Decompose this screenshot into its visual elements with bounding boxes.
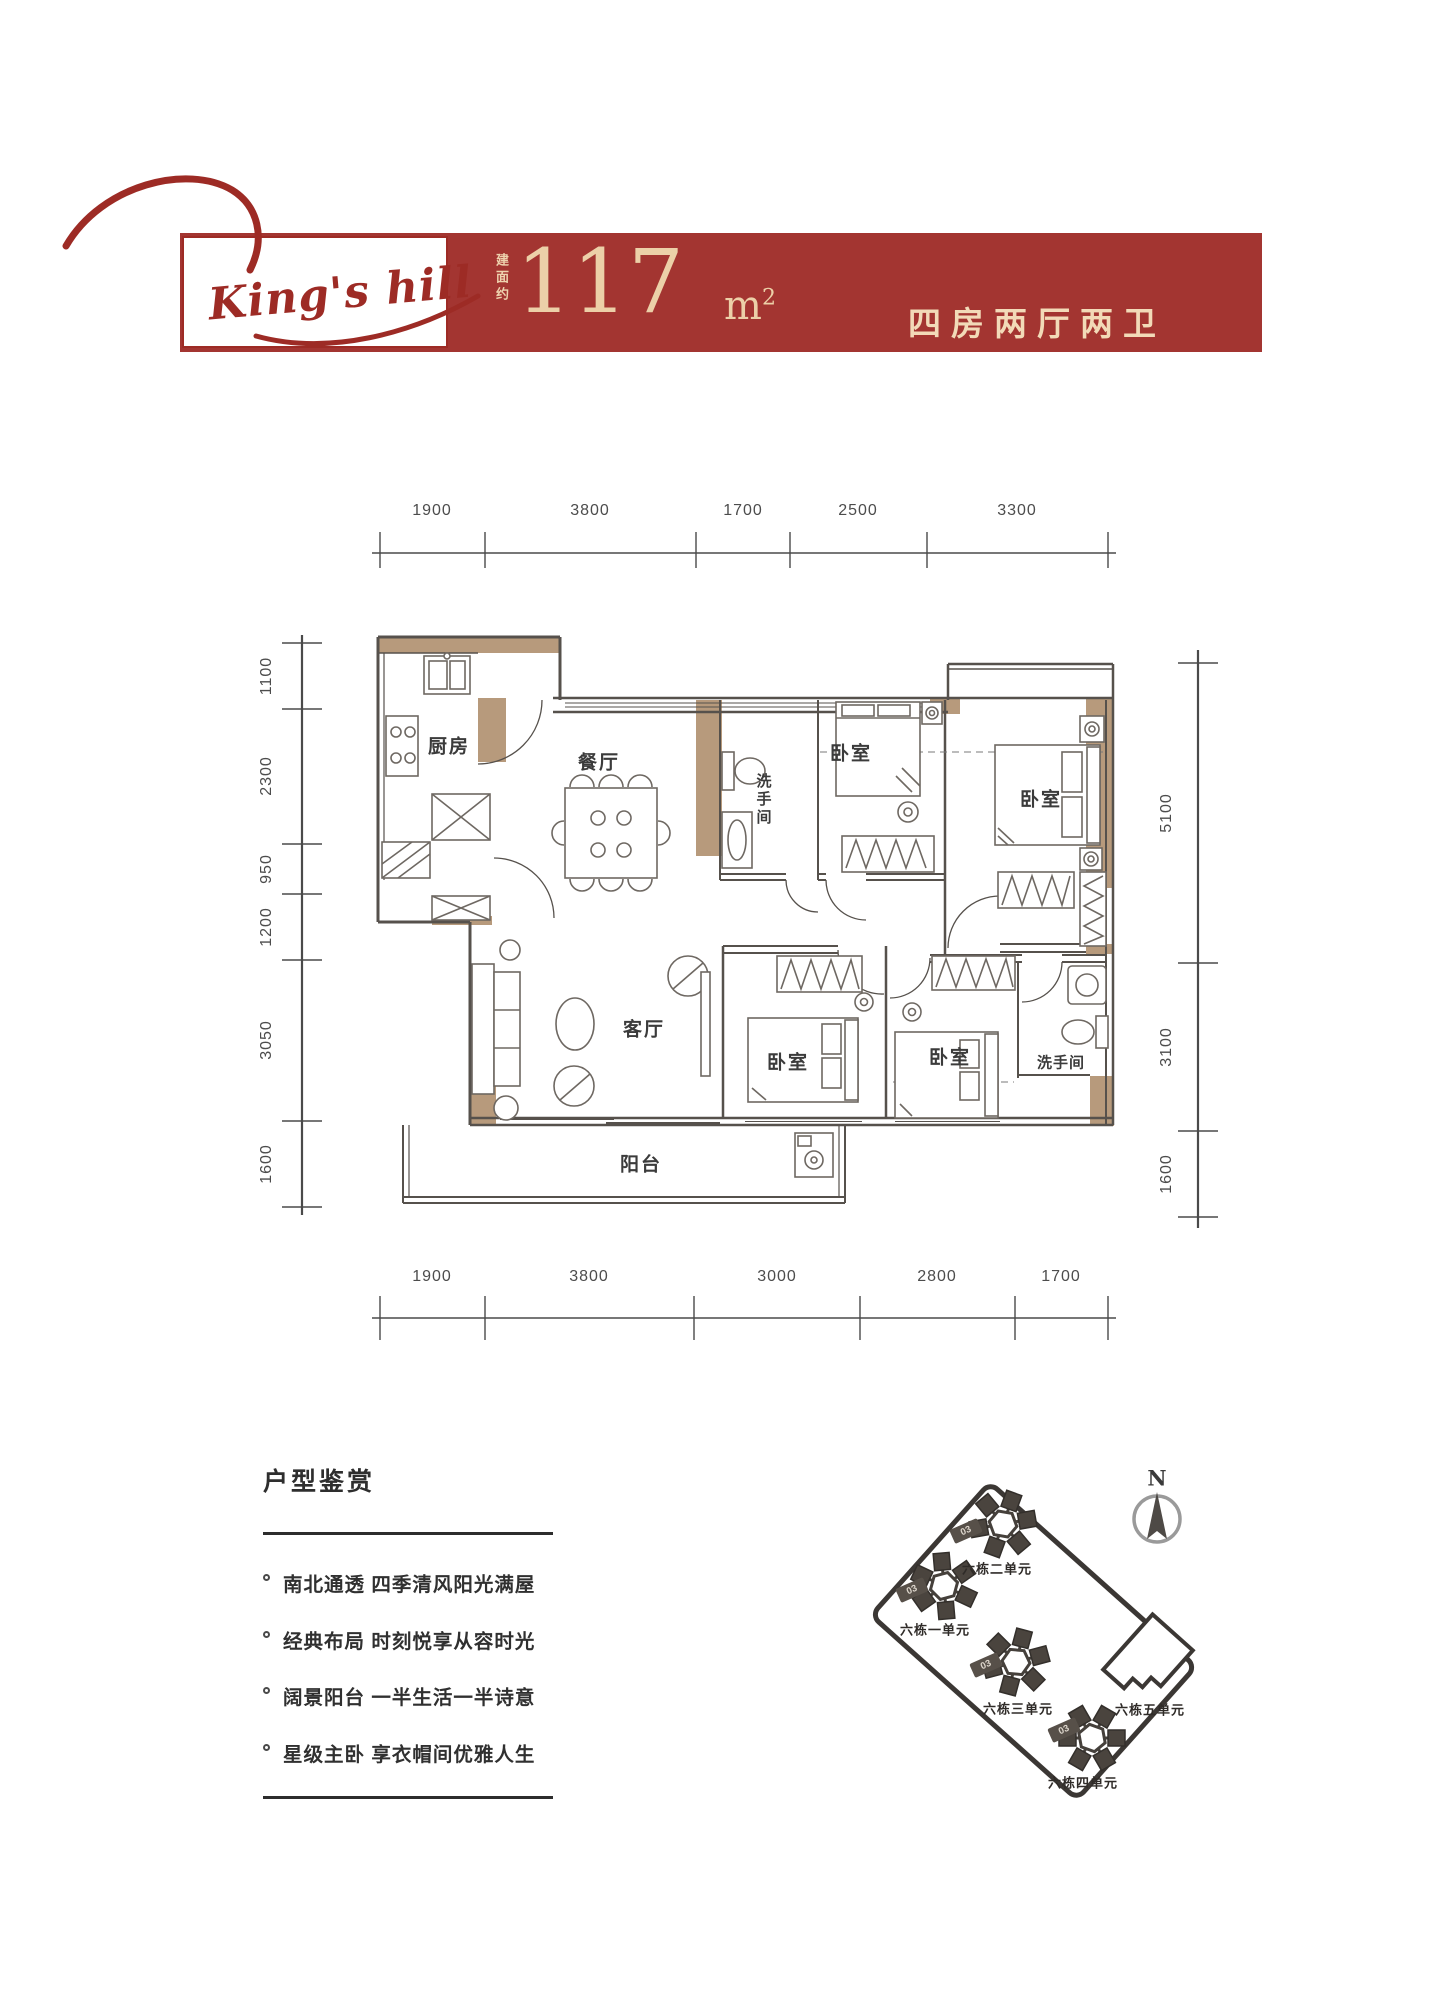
dim-left-1: 1100 — [258, 657, 276, 695]
room-label-bathroom-2: 洗手间 — [1037, 1052, 1085, 1073]
unit-label-3: 六栋三单元 — [983, 1699, 1053, 1718]
room-label-bedroom-4: 卧室 — [929, 1043, 971, 1070]
room-label-kitchen: 厨房 — [428, 732, 470, 759]
features-rule-top — [263, 1532, 553, 1535]
room-label-bedroom-3: 卧室 — [767, 1048, 809, 1075]
dim-left-4: 1200 — [258, 907, 276, 947]
room-label-bedroom-2: 卧室 — [830, 739, 872, 766]
dim-top-1: 1900 — [412, 502, 452, 520]
unit-label-2: 六栋二单元 — [962, 1559, 1032, 1578]
bullet-icon — [263, 1574, 270, 1581]
room-label-living: 客厅 — [623, 1015, 665, 1042]
dim-top-2: 3800 — [570, 502, 610, 520]
dim-left-5: 3050 — [258, 1020, 276, 1060]
unit-label-1: 六栋一单元 — [900, 1620, 970, 1639]
room-label-dining: 餐厅 — [578, 748, 620, 775]
dim-left-3: 950 — [258, 854, 276, 884]
dim-left-6: 1600 — [258, 1144, 276, 1184]
dim-right-1: 5100 — [1158, 793, 1176, 833]
feature-item: 阔景阳台 一半生活一半诗意 — [263, 1681, 535, 1709]
dim-bottom-4: 2800 — [917, 1268, 957, 1286]
dim-right-3: 1600 — [1158, 1154, 1176, 1194]
feature-item: 南北通透 四季清风阳光满屋 — [263, 1568, 535, 1596]
feature-text: 经典布局 时刻悦享从容时光 — [283, 1625, 535, 1654]
bullet-icon — [263, 1744, 270, 1751]
siteplan-drawing — [871, 1483, 1195, 1800]
floorplan-page: King's hill 建面约 117 m2 四房两厅两卫 — [0, 0, 1440, 2003]
dim-bottom-5: 1700 — [1041, 1268, 1081, 1286]
feature-text: 阔景阳台 一半生活一半诗意 — [283, 1681, 535, 1710]
north-label: N — [1147, 1466, 1166, 1491]
feature-text: 星级主卧 享衣帽间优雅人生 — [283, 1738, 535, 1767]
room-label-balcony: 阳台 — [620, 1150, 662, 1177]
floorplan-drawing — [0, 0, 1440, 2003]
unit-label-5: 六栋五单元 — [1115, 1700, 1185, 1719]
features-rule-bottom — [263, 1796, 553, 1799]
dim-left-2: 2300 — [258, 756, 276, 796]
bullet-icon — [263, 1631, 270, 1638]
dim-bottom-2: 3800 — [569, 1268, 609, 1286]
features-title: 户型鉴赏 — [263, 1462, 375, 1498]
feature-item: 星级主卧 享衣帽间优雅人生 — [263, 1738, 535, 1766]
dim-top-3: 1700 — [723, 502, 763, 520]
unit-label-4: 六栋四单元 — [1048, 1773, 1118, 1792]
room-label-bathroom-1: 洗手间 — [753, 773, 774, 827]
feature-text: 南北通透 四季清风阳光满屋 — [283, 1568, 535, 1597]
dim-bottom-1: 1900 — [412, 1268, 452, 1286]
dim-bottom-3: 3000 — [757, 1268, 797, 1286]
dim-top-4: 2500 — [838, 502, 878, 520]
compass-icon — [1134, 1492, 1180, 1542]
bullet-icon — [263, 1687, 270, 1694]
dim-top-5: 3300 — [997, 502, 1037, 520]
feature-item: 经典布局 时刻悦享从容时光 — [263, 1625, 535, 1653]
dim-right-2: 3100 — [1158, 1027, 1176, 1067]
room-label-bedroom-master: 卧室 — [1020, 785, 1062, 812]
